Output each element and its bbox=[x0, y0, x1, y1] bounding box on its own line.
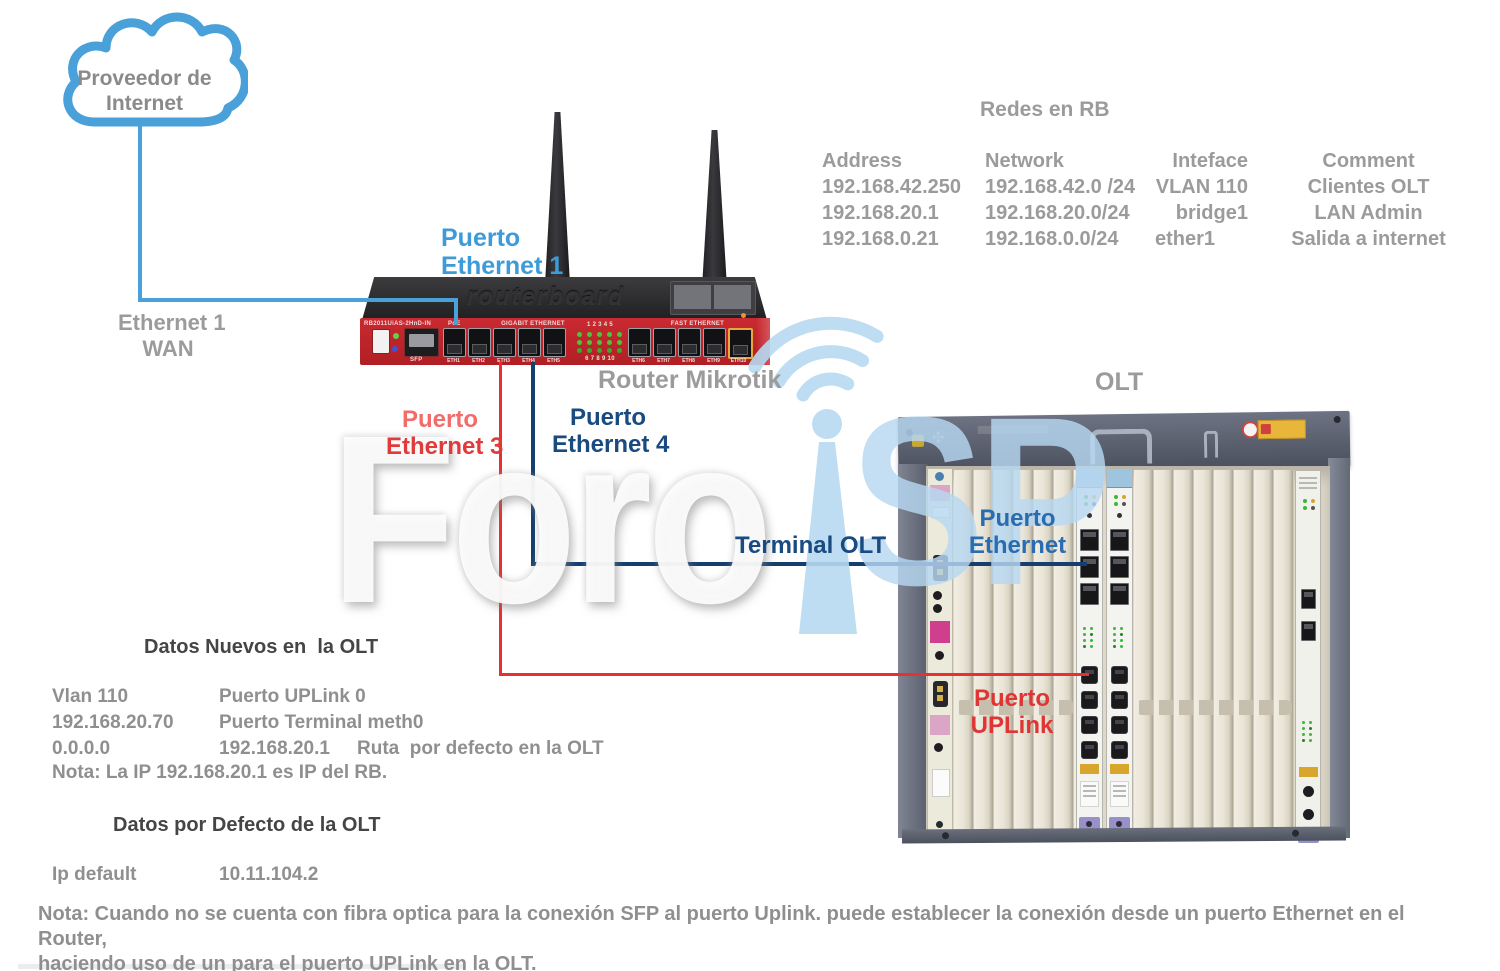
olt-label: OLT bbox=[1095, 368, 1143, 397]
eth5-port-label: ETH5 bbox=[542, 358, 565, 364]
olt-control-board-1 bbox=[1076, 468, 1103, 835]
olt-terminal-port bbox=[1080, 556, 1099, 578]
fast-section-label: FAST ETHERNET bbox=[640, 321, 755, 327]
eth4-port-label: ETH4 bbox=[517, 358, 540, 364]
network-diagram: Proveedor de Internet routerboard RB2011… bbox=[0, 0, 1500, 971]
datos-nuevos-title: Datos Nuevos en la OLT bbox=[144, 636, 378, 659]
olt-right-card bbox=[1295, 470, 1321, 836]
eth10-port bbox=[728, 328, 753, 359]
eth7-port bbox=[653, 328, 676, 357]
table-cell: 192.168.20.1 bbox=[822, 200, 985, 226]
olt-eth-port-3 bbox=[1080, 583, 1099, 605]
datos-defecto-table: Ip default 10.11.104.2 bbox=[52, 862, 452, 888]
olt-chassis: ✣ bbox=[898, 408, 1352, 844]
terminal-olt-label: Terminal OLT bbox=[735, 532, 886, 560]
internet-provider-label: Proveedor de Internet bbox=[62, 66, 227, 116]
bottom-note-line1: Nota: Cuando no se cuenta con fibra opti… bbox=[38, 902, 1438, 952]
wan-label: Ethernet 1 WAN bbox=[118, 310, 218, 362]
olt-eth-port-1 bbox=[1080, 529, 1099, 551]
eth7-port-label: ETH7 bbox=[652, 358, 675, 364]
internet-provider-line1: Proveedor de bbox=[62, 66, 227, 91]
rb-header-network: Network bbox=[985, 148, 1155, 174]
eth3-port bbox=[493, 328, 516, 357]
table-cell: VLAN 110 bbox=[1155, 174, 1276, 200]
rb-header-inteface: Inteface bbox=[1155, 148, 1276, 174]
olt-warning-sticker bbox=[1258, 419, 1306, 439]
olt-handle-bracket bbox=[1204, 431, 1218, 458]
olt-slot-covers-right bbox=[1134, 470, 1294, 836]
olt-power-card bbox=[927, 468, 953, 838]
eth6-port-label: ETH6 bbox=[627, 358, 650, 364]
sfp-label: SFP bbox=[410, 357, 423, 363]
table-cell: 192.168.0.21 bbox=[822, 226, 985, 252]
datos-nuevos-nota: Nota: La IP 192.168.20.1 es IP del RB. bbox=[52, 762, 387, 784]
datos-cell bbox=[357, 684, 672, 710]
eth4-line-vertical bbox=[531, 362, 535, 565]
eth3-line-vertical bbox=[499, 362, 502, 675]
datos-defecto-key: Ip default bbox=[52, 862, 219, 888]
table-cell: ether1 bbox=[1155, 226, 1276, 252]
eth8-port bbox=[678, 328, 701, 357]
table-cell: LAN Admin bbox=[1276, 200, 1461, 226]
datos-defecto-title: Datos por Defecto de la OLT bbox=[113, 814, 380, 837]
olt-right-rail bbox=[1328, 458, 1350, 838]
puerto-ethernet3-label: Puerto Ethernet 3 bbox=[386, 406, 494, 460]
datos-cell: Ruta por defecto en la OLT bbox=[357, 736, 672, 762]
olt-control-board-2 bbox=[1106, 468, 1133, 835]
table-cell: Salida a internet bbox=[1276, 226, 1461, 252]
eth4-line-horizontal bbox=[531, 562, 1087, 566]
eth2-port-label: ETH2 bbox=[467, 358, 490, 364]
olt-uplink-port-1 bbox=[1081, 691, 1098, 709]
eth10-port-label: ETH10 bbox=[727, 358, 750, 364]
datos-cell: Puerto UPLink 0 bbox=[219, 684, 357, 710]
datos-cell: Puerto Terminal meth0 bbox=[219, 710, 357, 736]
olt-fan-icon: ✣ bbox=[932, 429, 945, 447]
eth2-port bbox=[468, 328, 491, 357]
olt-aux-port bbox=[933, 681, 948, 707]
status-led-green bbox=[393, 333, 399, 339]
datos-cell: 0.0.0.0 bbox=[52, 736, 219, 762]
router-front-panel: RB2011UiAS-2HnD-IN SFP PoE GIGABIT ETHER… bbox=[360, 318, 770, 365]
router-name-label: Router Mikrotik bbox=[598, 366, 781, 395]
rb-header-comment: Comment bbox=[1276, 148, 1461, 174]
table-cell: 192.168.0.0/24 bbox=[985, 226, 1155, 252]
olt-bottom-frame bbox=[902, 826, 1346, 843]
puerto-ethernet4-label: Puerto Ethernet 4 bbox=[552, 404, 664, 458]
eth1-port-label: ETH1 bbox=[442, 358, 465, 364]
eth8-port-label: ETH8 bbox=[677, 358, 700, 364]
datos-cell: 192.168.20.70 bbox=[52, 710, 219, 736]
datos-cell: Vlan 110 bbox=[52, 684, 219, 710]
olt-brand-logo bbox=[912, 435, 924, 447]
puerto-ethernet1-label: Puerto Ethernet 1 bbox=[441, 224, 563, 280]
datos-nuevos-table: Vlan 110 Puerto UPLink 0 192.168.20.70 P… bbox=[52, 684, 672, 762]
datos-defecto-value: 10.11.104.2 bbox=[219, 862, 452, 888]
eth1-port bbox=[443, 328, 466, 357]
wan-line-horizontal bbox=[138, 298, 458, 302]
puerto-ethernet-olt-label: Puerto Ethernet bbox=[960, 505, 1075, 559]
led-numbers-top: 1 2 3 4 5 bbox=[574, 322, 626, 328]
olt-fan-tray: ✣ bbox=[898, 411, 1351, 473]
eth6-port bbox=[628, 328, 651, 357]
olt-left-rail bbox=[898, 464, 928, 838]
usb-port bbox=[372, 329, 390, 354]
eth3-port-label: ETH3 bbox=[492, 358, 515, 364]
eth9-port-label: ETH9 bbox=[702, 358, 725, 364]
eth4-port bbox=[518, 328, 541, 357]
olt-console-port bbox=[933, 555, 948, 581]
routerboard-embossed-text: routerboard bbox=[467, 283, 625, 311]
table-cell: bridge1 bbox=[1155, 200, 1276, 226]
wan-line-drop bbox=[454, 298, 458, 325]
eth10-indicator bbox=[741, 313, 746, 318]
rb-table-title: Redes en RB bbox=[980, 98, 1110, 122]
router-model-text: RB2011UiAS-2HnD-IN bbox=[364, 321, 431, 327]
olt-uplink-port-3 bbox=[1081, 741, 1098, 759]
rb-table: Address Network Inteface Comment 192.168… bbox=[822, 148, 1461, 252]
bottom-note: Nota: Cuando no se cuenta con fibra opti… bbox=[38, 902, 1438, 971]
bottom-note-line2: haciendo uso de un para el puerto UPLink… bbox=[38, 952, 1438, 971]
datos-cell bbox=[357, 710, 672, 736]
table-cell: 192.168.42.250 bbox=[822, 174, 985, 200]
olt-handle bbox=[1090, 429, 1152, 465]
olt-uplink-port-2 bbox=[1081, 716, 1098, 734]
table-cell: 192.168.20.0/24 bbox=[985, 200, 1155, 226]
table-cell: 192.168.42.0 /24 bbox=[985, 174, 1155, 200]
olt-warning-icon bbox=[1242, 421, 1259, 438]
table-cell: Clientes OLT bbox=[1276, 174, 1461, 200]
puerto-uplink-label: Puerto UPLink bbox=[958, 685, 1066, 739]
router-lcd-screen bbox=[670, 281, 756, 315]
eth3-line-horizontal bbox=[499, 673, 1089, 676]
rb-header-address: Address bbox=[822, 148, 985, 174]
port-led-matrix bbox=[577, 332, 582, 337]
sfp-cage bbox=[404, 328, 439, 357]
wan-line-vertical bbox=[138, 122, 142, 302]
led-numbers-bottom: 6 7 8 9 10 bbox=[572, 356, 628, 362]
internet-provider-line2: Internet bbox=[62, 91, 227, 116]
eth9-port bbox=[703, 328, 726, 357]
status-led-blue bbox=[392, 346, 398, 352]
datos-cell: 192.168.20.1 bbox=[219, 736, 357, 762]
eth5-port bbox=[543, 328, 566, 357]
